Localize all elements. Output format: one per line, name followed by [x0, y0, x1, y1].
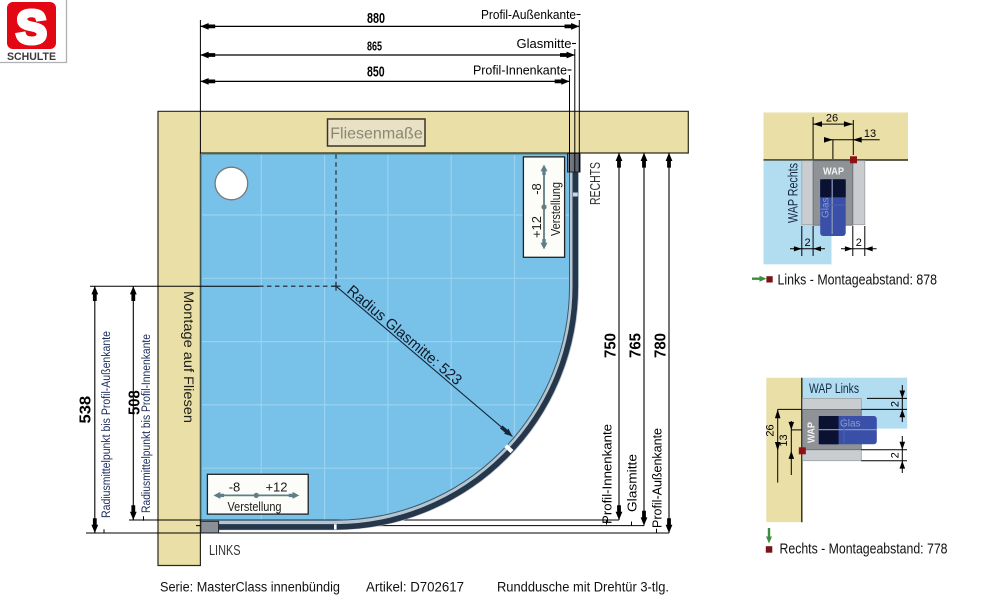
svg-text:2: 2	[890, 452, 902, 458]
svg-text:Verstellung: Verstellung	[549, 182, 563, 236]
svg-text:Radiusmittelpunkt bis Profil-I: Radiusmittelpunkt bis Profil-Innenkante	[141, 334, 153, 513]
svg-text:-8: -8	[529, 183, 544, 195]
svg-text:Radiusmittelpunkt bis Profil-A: Radiusmittelpunkt bis Profil-Außenkante	[101, 331, 113, 518]
svg-text:Glasmitte: Glasmitte	[626, 454, 640, 512]
svg-text:26: 26	[765, 424, 777, 436]
svg-text:2: 2	[804, 237, 810, 249]
svg-text:Runddusche mit Drehtür 3-tlg.: Runddusche mit Drehtür 3-tlg.	[497, 580, 669, 595]
svg-text:Profil-Außenkante: Profil-Außenkante	[481, 8, 576, 22]
svg-text:2: 2	[856, 237, 862, 249]
svg-text:Glas: Glas	[821, 197, 832, 218]
svg-text:880: 880	[367, 10, 385, 27]
svg-text:LINKS: LINKS	[209, 542, 241, 559]
svg-text:RECHTS: RECHTS	[587, 162, 604, 205]
svg-text:Fliesenmaße: Fliesenmaße	[330, 126, 423, 143]
svg-text:Montage auf Fliesen: Montage auf Fliesen	[181, 291, 196, 423]
svg-text:2: 2	[890, 401, 902, 407]
svg-text:Profil-Innenkante: Profil-Innenkante	[601, 424, 615, 524]
svg-text:-8: -8	[229, 480, 241, 495]
svg-text:538: 538	[78, 396, 95, 424]
svg-text:Serie: MasterClass innenbündig: Serie: MasterClass innenbündig	[160, 580, 340, 595]
svg-text:Profil-Außenkante: Profil-Außenkante	[651, 428, 665, 528]
svg-text:13: 13	[778, 434, 790, 446]
svg-text:WAP: WAP	[806, 422, 818, 443]
svg-text:780: 780	[653, 333, 670, 358]
svg-text:13: 13	[864, 128, 876, 140]
svg-text:S: S	[16, 1, 47, 53]
svg-text:WAP: WAP	[823, 166, 844, 178]
svg-text:WAP Rechts: WAP Rechts	[785, 163, 801, 223]
svg-text:WAP Links: WAP Links	[809, 380, 859, 396]
svg-text:Glasmitte: Glasmitte	[517, 37, 572, 51]
svg-text:+12: +12	[529, 216, 544, 238]
svg-text:+12: +12	[265, 480, 287, 495]
svg-text:Links - Montageabstand: 878: Links - Montageabstand: 878	[778, 272, 938, 289]
svg-text:750: 750	[603, 333, 620, 358]
svg-text:765: 765	[628, 333, 645, 358]
svg-text:26: 26	[826, 113, 838, 125]
svg-text:Artikel: D702617: Artikel: D702617	[366, 580, 464, 595]
svg-text:850: 850	[367, 64, 385, 81]
svg-text:Glas: Glas	[840, 419, 861, 430]
svg-text:Rechts - Montageabstand: 778: Rechts - Montageabstand: 778	[780, 541, 948, 558]
svg-text:865: 865	[367, 40, 382, 54]
svg-text:Verstellung: Verstellung	[228, 500, 282, 514]
svg-text:Profil-Innenkante: Profil-Innenkante	[473, 64, 567, 78]
svg-text:SCHULTE: SCHULTE	[7, 51, 56, 63]
